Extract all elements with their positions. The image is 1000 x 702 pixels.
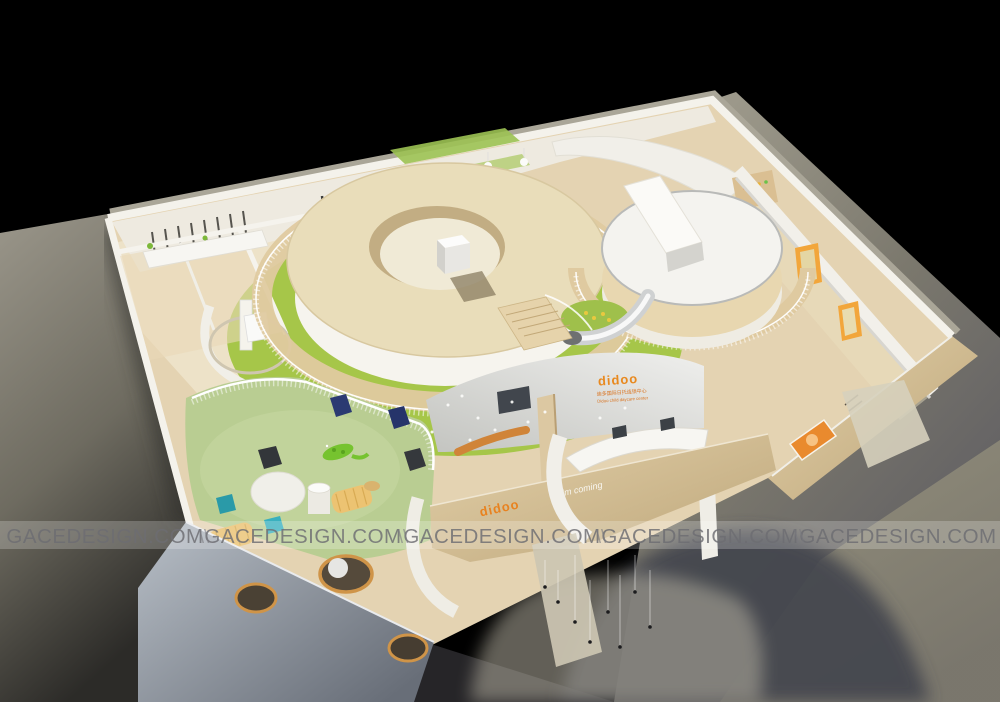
desk-plant (147, 243, 153, 249)
scene-svg: didoo 迪多国际日托连锁中心 Didoo child daycare cen… (0, 0, 1000, 702)
porthole-window (236, 584, 276, 612)
watermark-band: GACEDESIGN.COM GACEDESIGN.COM GACEDESIGN… (0, 521, 1000, 549)
watermark-text: GACEDESIGN.COM (799, 525, 996, 548)
watermark-separator: \\ (398, 527, 409, 548)
watermark-separator: \\ (794, 527, 805, 548)
watermark-text: GACEDESIGN.COM (6, 525, 203, 548)
desk-plant-2 (203, 236, 208, 241)
side-table (308, 483, 330, 514)
porthole-window-2 (320, 556, 372, 592)
watermark-separator: \\ (596, 527, 607, 548)
watermark-text: GACEDESIGN.COM (601, 525, 798, 548)
watermark-text: GACEDESIGN.COM (403, 525, 600, 548)
ball-in-porthole (328, 558, 348, 578)
pouf (364, 481, 380, 491)
watermark-text: GACEDESIGN.COM (204, 525, 401, 548)
lobby-sign-logo: didoo (597, 371, 638, 389)
ring-center-cube (437, 235, 470, 274)
watermark-separator: \\ (199, 527, 210, 548)
round-rug (251, 472, 305, 512)
orange-door-2 (838, 301, 862, 341)
porthole-window-3 (389, 635, 427, 661)
render-stage: didoo 迪多国际日托连锁中心 Didoo child daycare cen… (0, 0, 1000, 702)
